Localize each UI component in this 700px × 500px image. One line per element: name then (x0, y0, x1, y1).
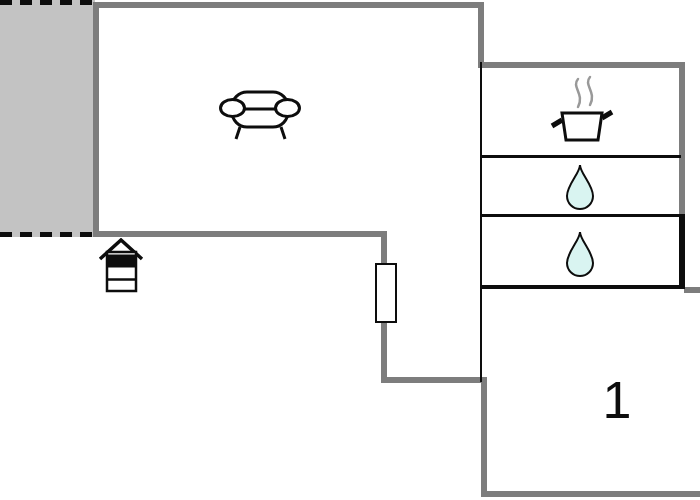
water-drop-icon (564, 163, 596, 211)
partition-bedroom-top (481, 285, 681, 289)
sofa-icon (218, 86, 302, 142)
wall-kitchen-top (478, 62, 685, 68)
floor-plan: 1 (0, 0, 700, 500)
partition-column-left (480, 62, 482, 382)
wall-living-right (478, 2, 484, 68)
partition-kitchen-bottom (481, 155, 681, 158)
wall-right-outer (679, 62, 685, 215)
terrace-area (0, 0, 95, 237)
partition-bath2-right (679, 214, 685, 289)
bedroom-number-label: 1 (593, 374, 641, 426)
partition-bath1-bottom (481, 214, 681, 217)
wall-bedroom-bottom (481, 491, 700, 497)
wall-right-stub (684, 287, 700, 293)
fireplace-icon (97, 238, 145, 294)
wall-hall-bottom (381, 377, 487, 383)
terrace-top-dashed-border (0, 0, 95, 5)
door-icon (375, 263, 397, 323)
cooking-pot-icon (546, 74, 618, 144)
wall-top (93, 2, 484, 8)
terrace-bottom-dashed-border (0, 232, 95, 237)
wall-living-bottom (93, 231, 387, 237)
water-drop-icon (564, 230, 596, 278)
wall-bedroom-left (481, 377, 487, 497)
wall-left (93, 2, 99, 237)
